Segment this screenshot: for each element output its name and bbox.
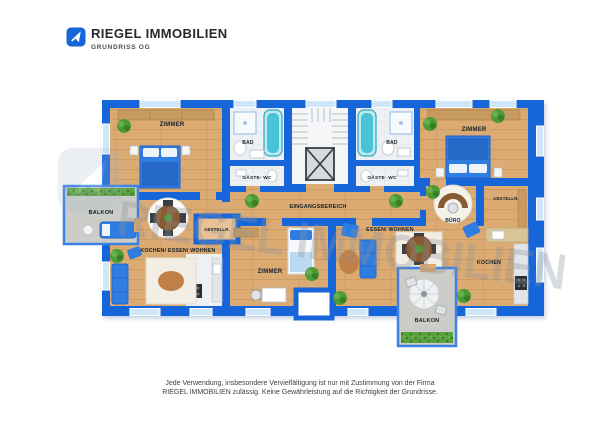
brand-text-block: RIEGEL IMMOBILIEN GRUNDRISS OG <box>91 27 228 51</box>
plant-icon <box>491 109 505 123</box>
brand-header: RIEGEL IMMOBILIEN GRUNDRISS OG <box>66 27 228 51</box>
label-bad-right: BAD <box>386 140 398 146</box>
sideboard <box>428 110 520 120</box>
house-arrow-icon <box>66 27 86 47</box>
plant-icon <box>117 119 131 133</box>
plant-icon <box>426 185 440 199</box>
plant-icon <box>110 249 124 263</box>
disclaimer-line-1: Jede Verwendung, insbesondere Vervielfäl… <box>0 379 600 388</box>
plant-icon <box>389 194 403 208</box>
plan-title: GRUNDRISS OG <box>91 44 228 51</box>
plant-icon <box>457 289 471 303</box>
label-abstellraum-right: ABSTELLR. <box>493 196 519 201</box>
entrance-notch <box>296 290 332 318</box>
disclaimer: Jede Verwendung, insbesondere Vervielfäl… <box>0 379 600 397</box>
side-table <box>83 225 93 235</box>
chair <box>251 290 261 300</box>
label-zimmer-bottom: ZIMMER <box>258 269 283 275</box>
elevator <box>306 148 334 180</box>
desk <box>262 288 286 302</box>
label-bad-left: BAD <box>242 140 254 146</box>
label-kochen-essen-wohnen: KOCHEN/ ESSEN/ WOHNEN <box>140 248 215 254</box>
label-kochen: KOCHEN <box>477 260 501 266</box>
floor-plan-svg: RIEGEL IMMOBILIEN ZIMMER BAD GÄSTE- WC B… <box>0 0 600 423</box>
brand-name: RIEGEL IMMOBILIEN <box>91 27 228 41</box>
rug-oval <box>158 271 184 291</box>
label-gaeste-wc-left: GÄSTE- WC <box>242 174 272 181</box>
plant-icon <box>333 291 347 305</box>
hedge <box>401 332 453 343</box>
label-abstellraum-left: ABSTELLR. <box>204 227 230 232</box>
shelf <box>518 190 526 228</box>
sofa <box>112 264 128 304</box>
label-gaeste-wc-right: GÄSTE- WC <box>367 174 397 181</box>
sideboard <box>118 110 214 120</box>
page: RIEGEL IMMOBILIEN GRUNDRISS OG <box>0 0 600 423</box>
label-balkon-left: BALKON <box>89 210 114 216</box>
label-buero: BÜRO <box>445 217 461 224</box>
plant-icon <box>423 117 437 131</box>
disclaimer-line-2: RIEGEL IMMOBILIEN zulässig. Keine Gewähr… <box>0 388 600 397</box>
label-eingangsbereich: EINGANGSBEREICH <box>289 204 346 210</box>
label-essen-wohnen: ESSEN/ WOHNEN <box>366 227 414 233</box>
label-zimmer-top-right: ZIMMER <box>462 127 487 133</box>
sink <box>213 264 221 274</box>
watermark-logo-icon <box>58 148 123 213</box>
label-balkon-bottom: BALKON <box>415 318 440 324</box>
label-zimmer-top-left: ZIMMER <box>160 122 185 128</box>
